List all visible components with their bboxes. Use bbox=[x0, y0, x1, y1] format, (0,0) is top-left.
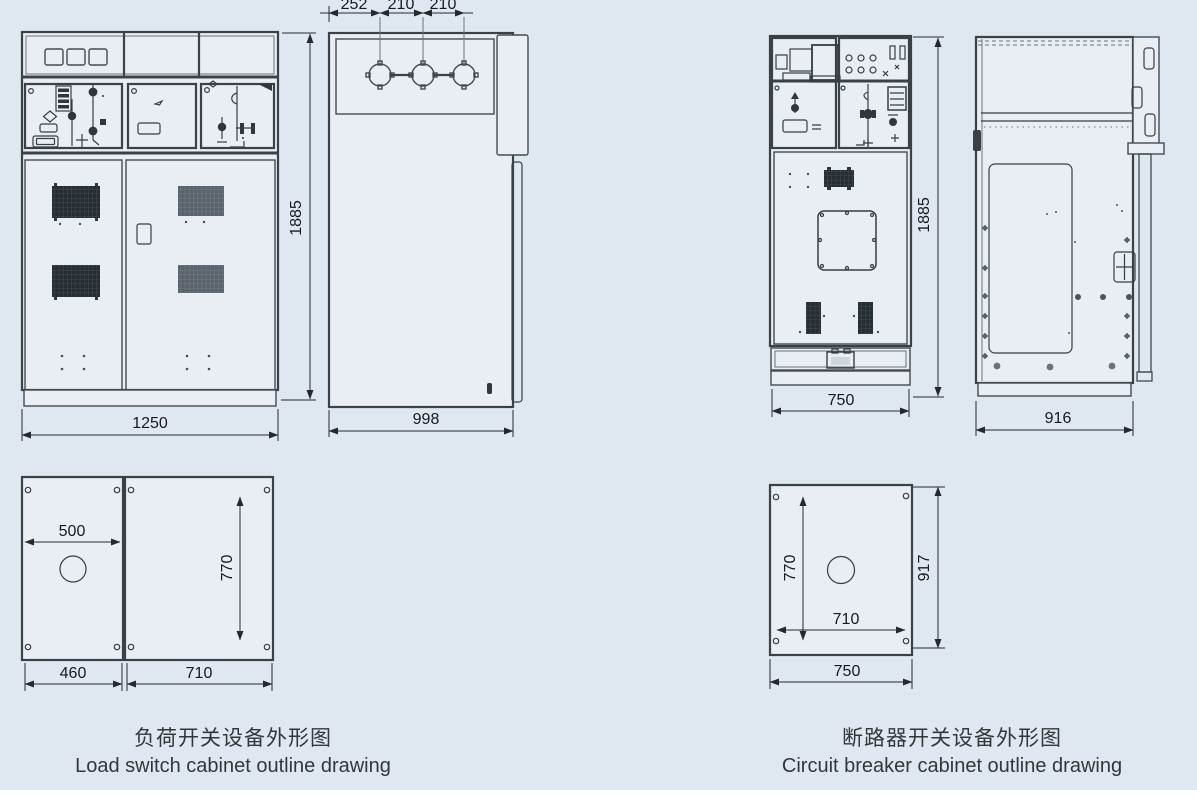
circuit-breaker-caption-zh: 断路器开关设备外形图 bbox=[742, 722, 1162, 752]
dim-plan-460: 460 bbox=[25, 663, 122, 691]
dim-label-710-right: 710 bbox=[833, 611, 860, 628]
dim-load-switch-height: 1885 bbox=[281, 33, 316, 400]
outline-drawings-canvas: 1885 1250 bbox=[0, 0, 1197, 797]
dim-plan-710: 710 bbox=[127, 663, 272, 691]
dim-label-770-right: 770 bbox=[782, 555, 799, 582]
circuit-breaker-plan-view: 770 710 917 750 bbox=[770, 485, 945, 689]
dim-label-770-left: 770 bbox=[219, 555, 236, 582]
dim-label-cb-height-1885: 1885 bbox=[916, 197, 933, 233]
dim-label-210-a: 210 bbox=[388, 0, 415, 13]
load-switch-side-view: 252 210 210 998 bbox=[320, 0, 528, 437]
cb-vent-right bbox=[858, 302, 873, 334]
circuit-breaker-front-view: 1885 750 bbox=[770, 36, 944, 417]
circuit-breaker-caption: 断路器开关设备外形图 Circuit breaker cabinet outli… bbox=[742, 722, 1162, 778]
door-lock-mark bbox=[487, 383, 492, 394]
cb-top-grille bbox=[824, 170, 854, 187]
load-switch-caption-en: Load switch cabinet outline drawing bbox=[27, 755, 439, 778]
dim-label-cb-width-750: 750 bbox=[828, 392, 855, 409]
dim-label-917: 917 bbox=[916, 555, 933, 582]
hinge-mark bbox=[973, 130, 981, 151]
catalog-page: 1885 1250 bbox=[0, 0, 1197, 797]
cb-side-door-strip bbox=[1139, 154, 1151, 372]
circuit-breaker-side-view: 916 bbox=[973, 37, 1164, 436]
dim-label-cb-plan-750: 750 bbox=[834, 663, 861, 680]
load-switch-front-view: 1885 1250 bbox=[22, 32, 316, 441]
page-bottom-strip bbox=[0, 790, 1197, 797]
dim-label-460: 460 bbox=[60, 665, 87, 682]
cb-plinth bbox=[771, 371, 910, 385]
load-switch-caption: 负荷开关设备外形图 Load switch cabinet outline dr… bbox=[27, 722, 439, 778]
dim-label-710-left: 710 bbox=[186, 665, 213, 682]
load-switch-caption-zh: 负荷开关设备外形图 bbox=[27, 722, 439, 752]
dim-cb-depth: 916 bbox=[976, 401, 1133, 436]
cb-vent-left bbox=[806, 302, 821, 334]
dim-label-depth-998: 998 bbox=[413, 411, 440, 428]
dim-cb-plan-917: 917 bbox=[913, 487, 945, 648]
dim-cb-plan-750: 750 bbox=[770, 659, 912, 689]
dim-label-500: 500 bbox=[59, 523, 86, 540]
dim-label-210-b: 210 bbox=[430, 0, 457, 13]
load-switch-plan-view: 500 770 460 710 bbox=[22, 477, 273, 691]
dim-bushing-spacing: 252 210 210 bbox=[320, 0, 473, 22]
dim-load-switch-depth: 998 bbox=[329, 410, 513, 437]
circuit-breaker-caption-en: Circuit breaker cabinet outline drawing bbox=[742, 755, 1162, 778]
plinth bbox=[24, 390, 276, 406]
dim-label-height-1885: 1885 bbox=[288, 200, 305, 236]
dim-label-252: 252 bbox=[341, 0, 368, 13]
cb-side-plinth bbox=[978, 383, 1131, 396]
dim-label-cb-depth-916: 916 bbox=[1045, 410, 1072, 427]
dim-cb-height: 1885 bbox=[913, 37, 944, 397]
dim-cb-width: 750 bbox=[772, 389, 909, 417]
dim-load-switch-width: 1250 bbox=[22, 409, 278, 441]
dim-label-width-1250: 1250 bbox=[132, 415, 168, 432]
